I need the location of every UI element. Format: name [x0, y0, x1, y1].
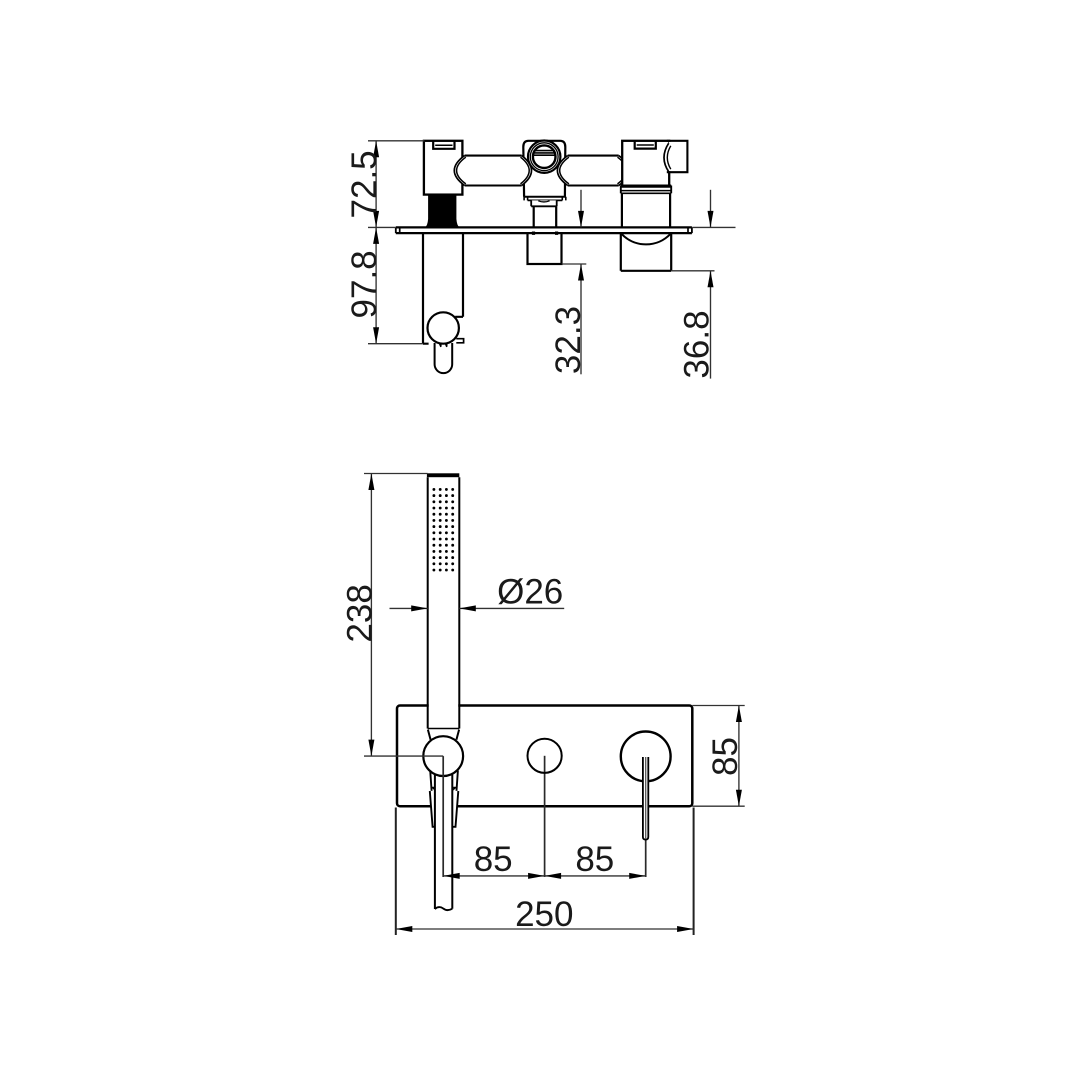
svg-text:238: 238 — [340, 584, 379, 642]
svg-text:85: 85 — [706, 737, 745, 776]
svg-text:85: 85 — [575, 840, 614, 879]
svg-text:97.8: 97.8 — [345, 250, 384, 318]
svg-text:85: 85 — [474, 840, 513, 879]
svg-text:32.3: 32.3 — [549, 306, 588, 374]
svg-text:72.5: 72.5 — [345, 150, 384, 218]
svg-text:36.8: 36.8 — [678, 310, 717, 378]
svg-text:250: 250 — [515, 895, 573, 934]
svg-text:Ø26: Ø26 — [497, 573, 563, 612]
